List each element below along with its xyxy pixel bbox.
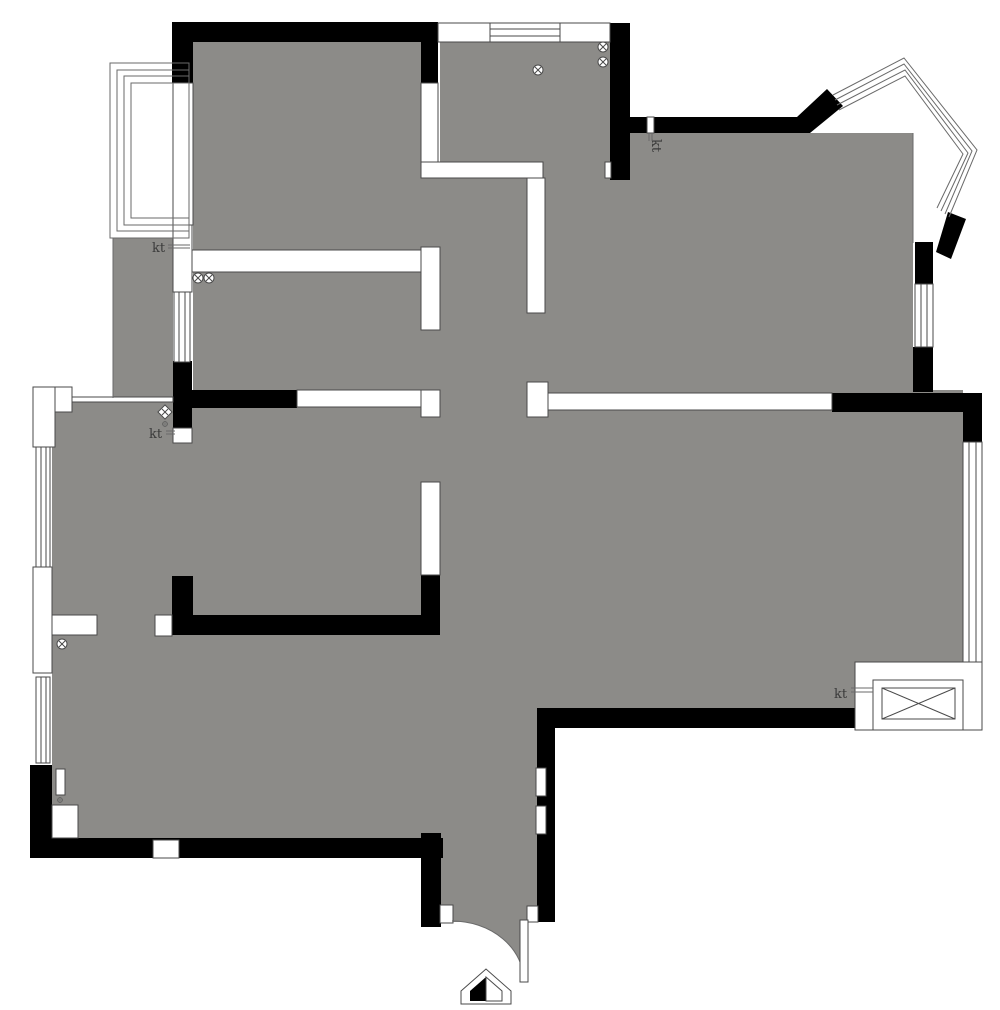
wall-segment (421, 575, 440, 635)
partition (192, 250, 421, 272)
wall-segment (172, 22, 193, 83)
door-jamb (527, 906, 538, 922)
window (963, 442, 982, 662)
floor-plan: kt kt kt kt (0, 0, 1000, 1010)
window (490, 23, 560, 42)
floor-plan-svg: kt kt kt kt (0, 0, 1000, 1010)
wall-segment (172, 22, 438, 42)
door-leaf (520, 920, 528, 982)
wall-segment (832, 393, 982, 412)
wall-pillar (33, 567, 52, 673)
window (915, 284, 933, 347)
door-opening (153, 840, 179, 858)
wall-segment (173, 390, 297, 408)
partition (548, 393, 832, 410)
wall-segment (915, 242, 933, 284)
crossed-circle-lamp-icon (533, 65, 543, 75)
small-dot-icon (163, 422, 168, 427)
floor-vestibule (441, 700, 537, 922)
door-opening (155, 615, 172, 636)
wall-tab (536, 768, 546, 796)
door-slot (647, 117, 654, 133)
floor-side-strip (113, 238, 173, 398)
wall-segment (537, 708, 873, 728)
wall-segment (421, 833, 441, 927)
crossed-circle-lamp-icon (204, 273, 214, 283)
wall-segment (963, 412, 982, 442)
wall-segment (610, 23, 630, 180)
wall-segment (913, 347, 933, 392)
crossed-circle-lamp-icon (57, 639, 67, 649)
partition (527, 178, 545, 313)
kt-label-2: kt (648, 139, 663, 153)
window (174, 292, 190, 362)
wall-segment-angled (797, 89, 843, 133)
kt-label-4: kt (834, 687, 848, 702)
door-jamb (173, 428, 192, 443)
entrance-arrow-icon (461, 969, 511, 1004)
floor-bedroom-topleft (193, 42, 421, 250)
door-jamb (421, 390, 440, 417)
window (36, 677, 50, 763)
small-dot-icon (58, 798, 63, 803)
bay-corner-block (33, 387, 55, 447)
window-sill-line (72, 397, 173, 402)
wall-segment-angled (936, 212, 966, 259)
ac-outdoor-unit-box (855, 662, 982, 730)
floor-dining (610, 133, 913, 392)
floor-kitchen (440, 42, 610, 162)
crossed-circle-lamp-icon (598, 42, 608, 52)
door-opening (52, 805, 78, 838)
window (36, 447, 50, 567)
kt-label-3: kt (149, 427, 163, 442)
wall-segment (172, 615, 440, 635)
kt-label-1: kt (152, 241, 166, 256)
wall-segment (30, 838, 443, 858)
partition (421, 247, 440, 330)
wall-segment (421, 22, 438, 83)
door-jamb (440, 905, 453, 923)
partition (421, 162, 543, 178)
wall-segment (172, 576, 193, 616)
wall-tab (536, 806, 546, 834)
partition (421, 482, 440, 575)
radiator-block (56, 769, 65, 795)
partition (173, 83, 193, 225)
door-jamb (527, 382, 548, 417)
partition (421, 83, 438, 162)
door-slot (605, 162, 611, 178)
wall-stub (52, 615, 97, 635)
crossed-circle-lamp-icon (598, 57, 608, 67)
crossed-circle-lamp-icon (193, 273, 203, 283)
partition (297, 390, 421, 407)
